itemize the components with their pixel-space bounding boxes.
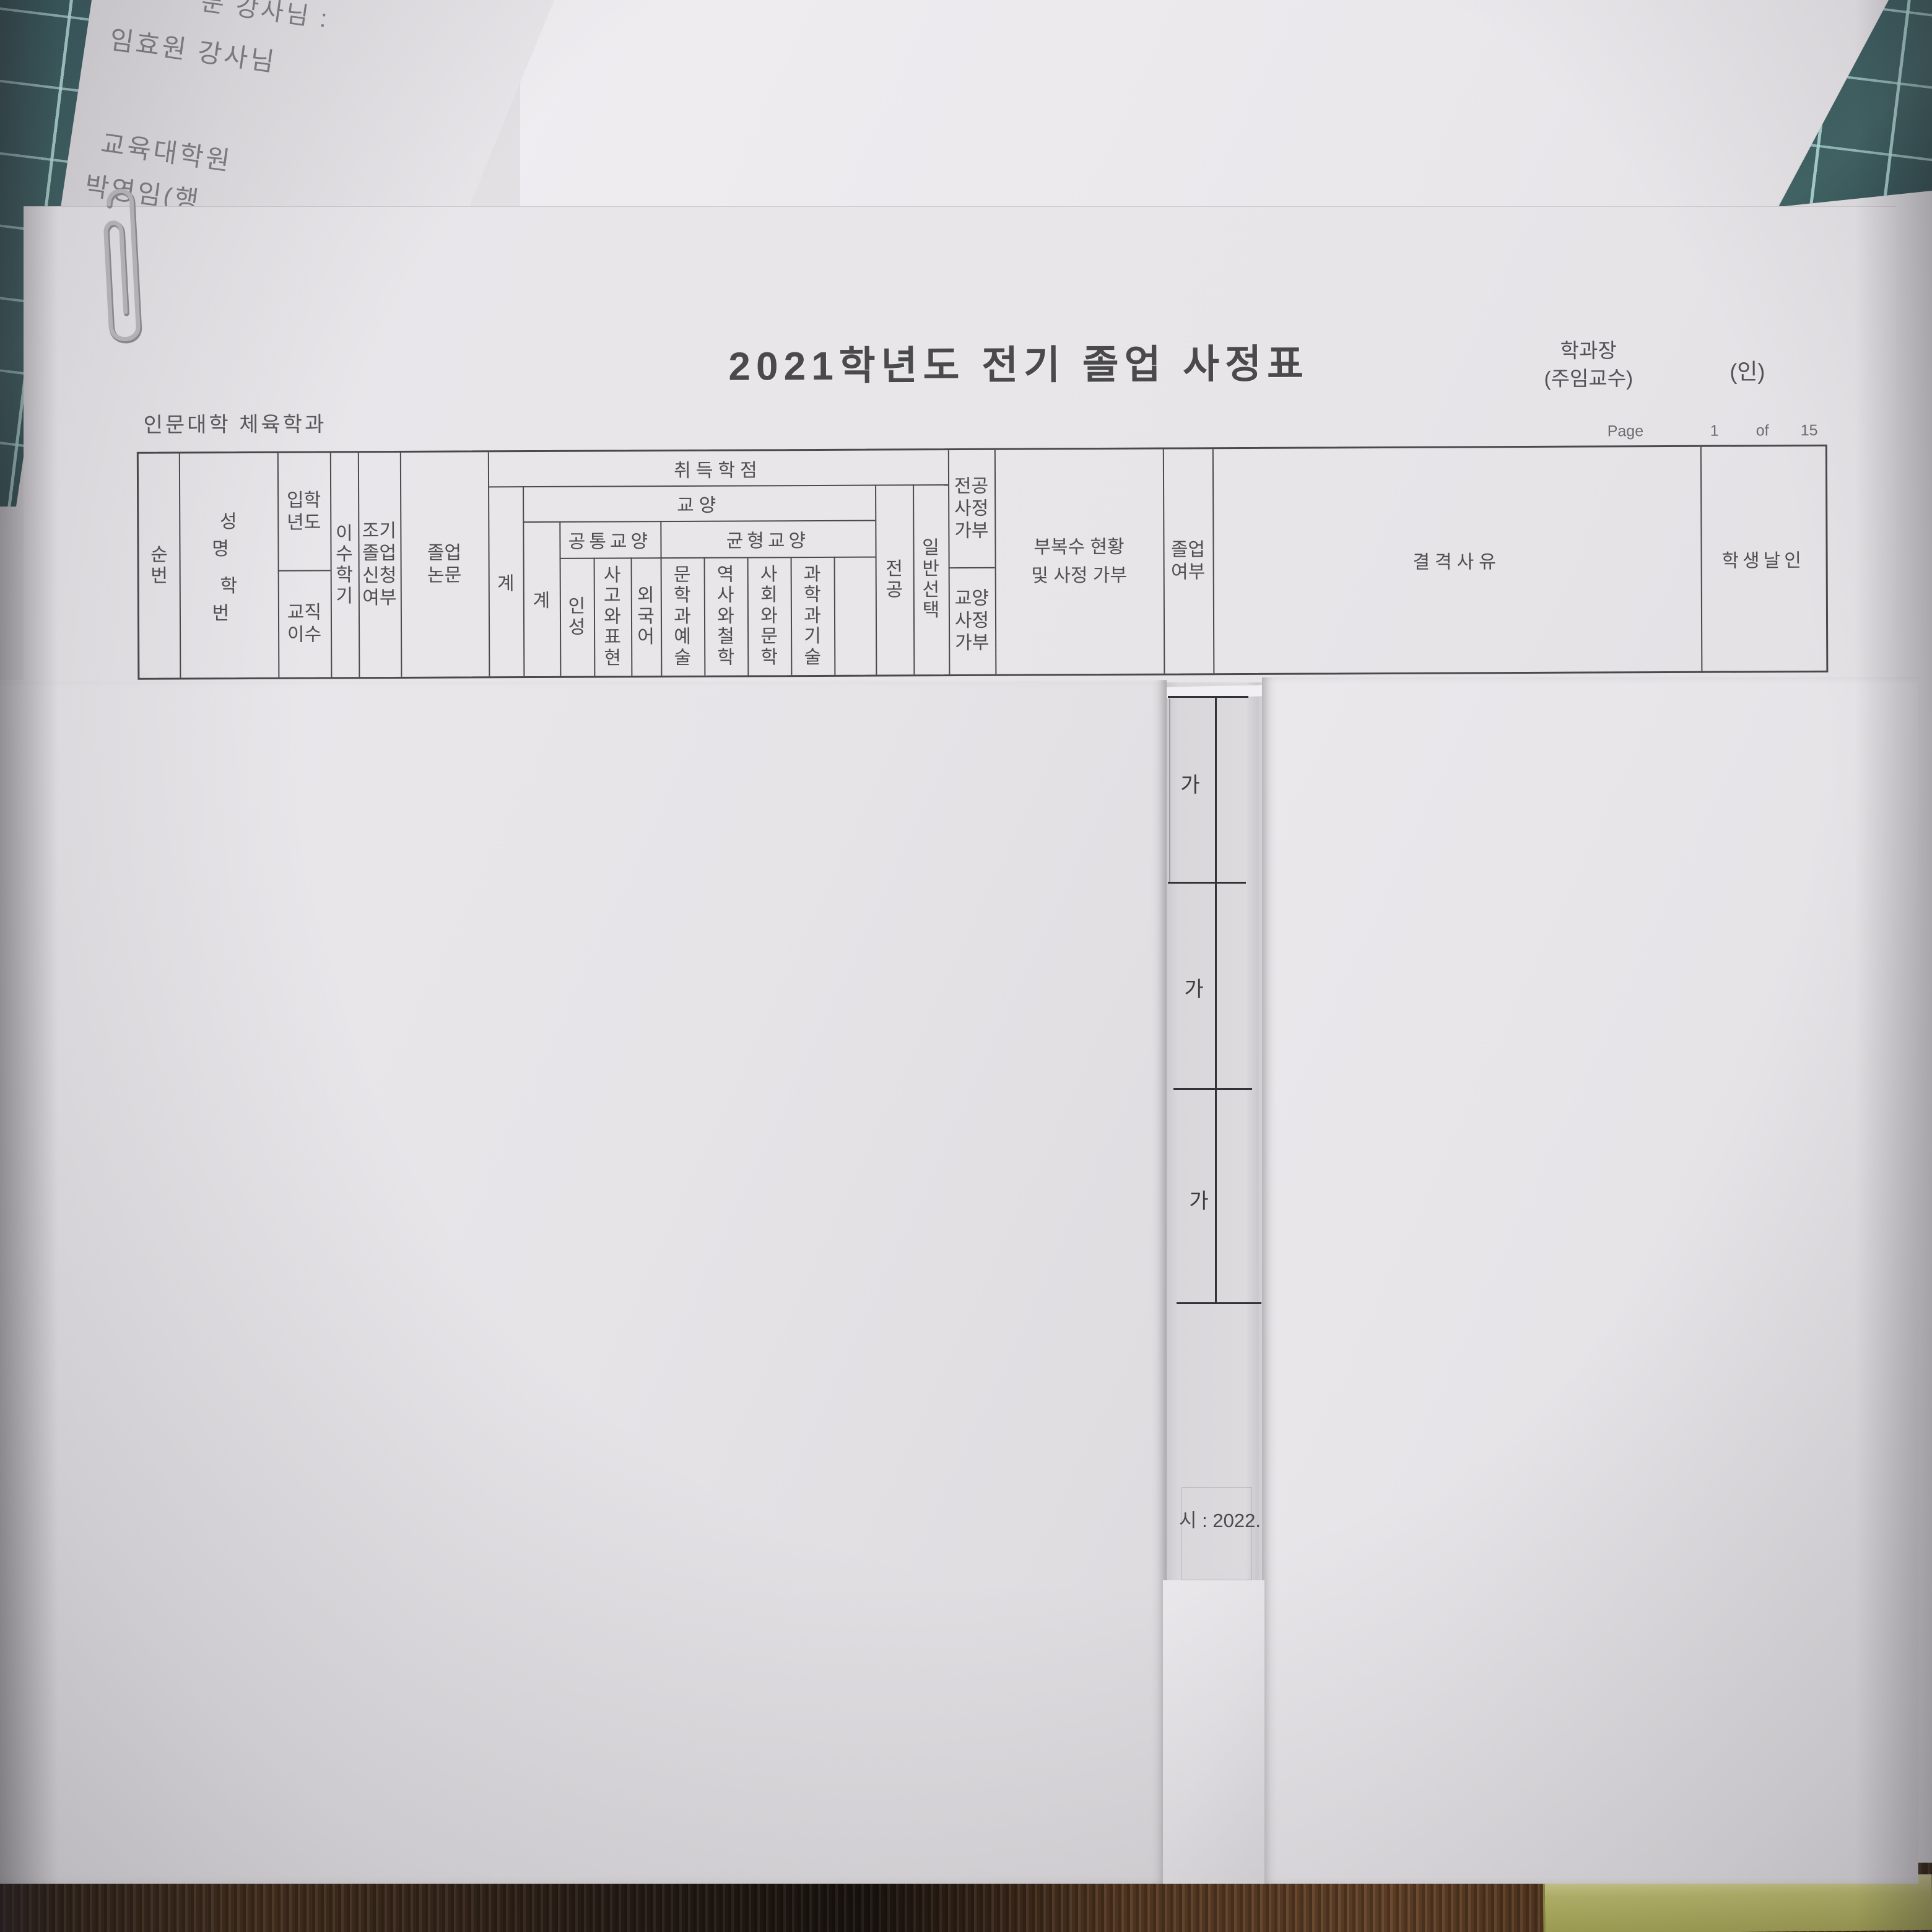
partial-date-text: 시 : 2022. bbox=[1179, 1505, 1261, 1533]
header-common-liberal: 공통교양 bbox=[559, 521, 660, 558]
header-balanced-liberal: 균형교양 bbox=[660, 520, 875, 558]
header-minor-double: 부복수 현황및 사정 가부 bbox=[994, 450, 1164, 674]
grid-line bbox=[1169, 698, 1170, 882]
note-line-2: 임효원 강사님 bbox=[108, 19, 279, 79]
header-name: 성 명 bbox=[179, 506, 277, 561]
pass-mark: 가 bbox=[1175, 972, 1212, 1003]
page-title: 2021학년도 전기 졸업 사정표 bbox=[653, 332, 1384, 392]
header-foreign-language: 외국어 bbox=[631, 557, 661, 676]
seal-placeholder: (인) bbox=[1730, 354, 1765, 386]
paperclip bbox=[90, 181, 150, 354]
page-of-label: of bbox=[1756, 422, 1769, 440]
header-society-literature: 사회와문학 bbox=[747, 557, 791, 675]
header-blank-cell bbox=[834, 557, 876, 675]
header-name-id: 성 명 학 번 bbox=[179, 453, 279, 678]
header-earned-credits: 취득학점 bbox=[488, 450, 948, 486]
header-no: 순번 bbox=[139, 453, 180, 677]
grid-line bbox=[1168, 696, 1248, 698]
header-personality: 인성 bbox=[560, 558, 594, 676]
assessment-table: 순번 성 명 학 번 입학년도 교직이수 이수학기 조기졸업신청여부 졸업논문 … bbox=[137, 445, 1829, 680]
photo-of-documents: 분 강사님 : 임효원 강사님 교육대학원 박영임(행 2021학년도 전기 졸… bbox=[0, 0, 1932, 1932]
header-liberal-total: 계 bbox=[523, 521, 560, 676]
under-sheet-edge-box bbox=[1181, 1487, 1252, 1580]
under-sheet-strip: 가 가 가 시 : 2022. bbox=[1164, 682, 1263, 1584]
cover-sheet-right bbox=[1262, 677, 1918, 1884]
header-credits-total: 계 bbox=[488, 486, 523, 676]
note-line-1: 분 강사님 : bbox=[199, 0, 333, 35]
page-total: 15 bbox=[1801, 422, 1818, 440]
approver-subtitle: (주임교수) bbox=[1544, 367, 1634, 390]
page-label: Page bbox=[1608, 422, 1644, 440]
header-student-id: 학 번 bbox=[180, 570, 278, 625]
header-thinking-expression: 사고와표현 bbox=[594, 557, 632, 676]
grid-line bbox=[1173, 1088, 1252, 1090]
header-disqualification: 결격사유 bbox=[1212, 447, 1702, 673]
department-label: 인문대학 체육학과 bbox=[144, 407, 327, 438]
page-number: 1 bbox=[1710, 422, 1719, 440]
header-early-grad: 조기졸업신청여부 bbox=[358, 453, 401, 677]
header-semesters: 이수학기 bbox=[330, 453, 359, 677]
header-history-philosophy: 역사와철학 bbox=[704, 557, 748, 675]
header-science-tech: 과학과기술 bbox=[791, 557, 835, 675]
grid-line bbox=[1177, 1302, 1261, 1304]
header-liberal-assessment: 교양사정가부 bbox=[949, 567, 996, 674]
header-major: 전공 bbox=[875, 484, 913, 674]
approver-label: 학과장 (주임교수) bbox=[1517, 337, 1660, 393]
header-admission-year: 입학년도 bbox=[277, 453, 331, 570]
cover-sheet-bottom bbox=[1163, 1580, 1264, 1884]
header-thesis: 졸업논문 bbox=[400, 452, 489, 677]
header-graduation: 졸업여부 bbox=[1163, 449, 1214, 673]
pass-mark: 가 bbox=[1180, 1184, 1217, 1214]
approver-title: 학과장 bbox=[1560, 339, 1616, 362]
page-indicator: Page 1 of 15 bbox=[1608, 422, 1830, 443]
cover-sheet-left bbox=[0, 680, 1167, 1884]
pass-mark: 가 bbox=[1172, 768, 1209, 798]
header-major-assessment: 전공사정가부 bbox=[948, 450, 995, 567]
back-sheet-top bbox=[520, 0, 1932, 214]
header-general-elective: 일반선택 bbox=[913, 484, 949, 674]
grid-line bbox=[1168, 882, 1246, 884]
header-student-seal: 학생날인 bbox=[1700, 446, 1827, 671]
header-liberal: 교양 bbox=[523, 485, 875, 521]
header-literature-arts: 문학과예술 bbox=[661, 557, 705, 676]
header-teaching-cert: 교직이수 bbox=[278, 570, 331, 677]
